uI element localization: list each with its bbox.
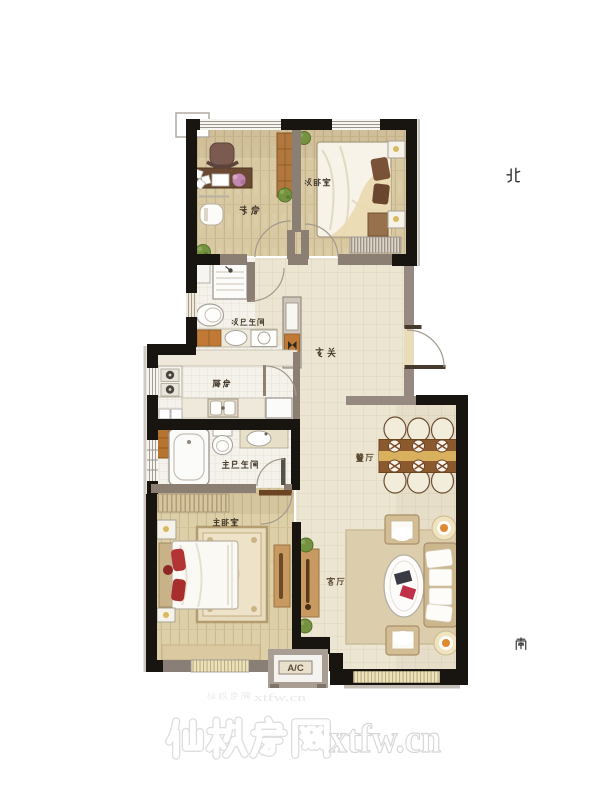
svg-text:xtfw.cn: xtfw.cn [329, 716, 441, 761]
svg-text:A/C: A/C [287, 663, 304, 674]
svg-text:xtfw.cn: xtfw.cn [254, 692, 307, 704]
